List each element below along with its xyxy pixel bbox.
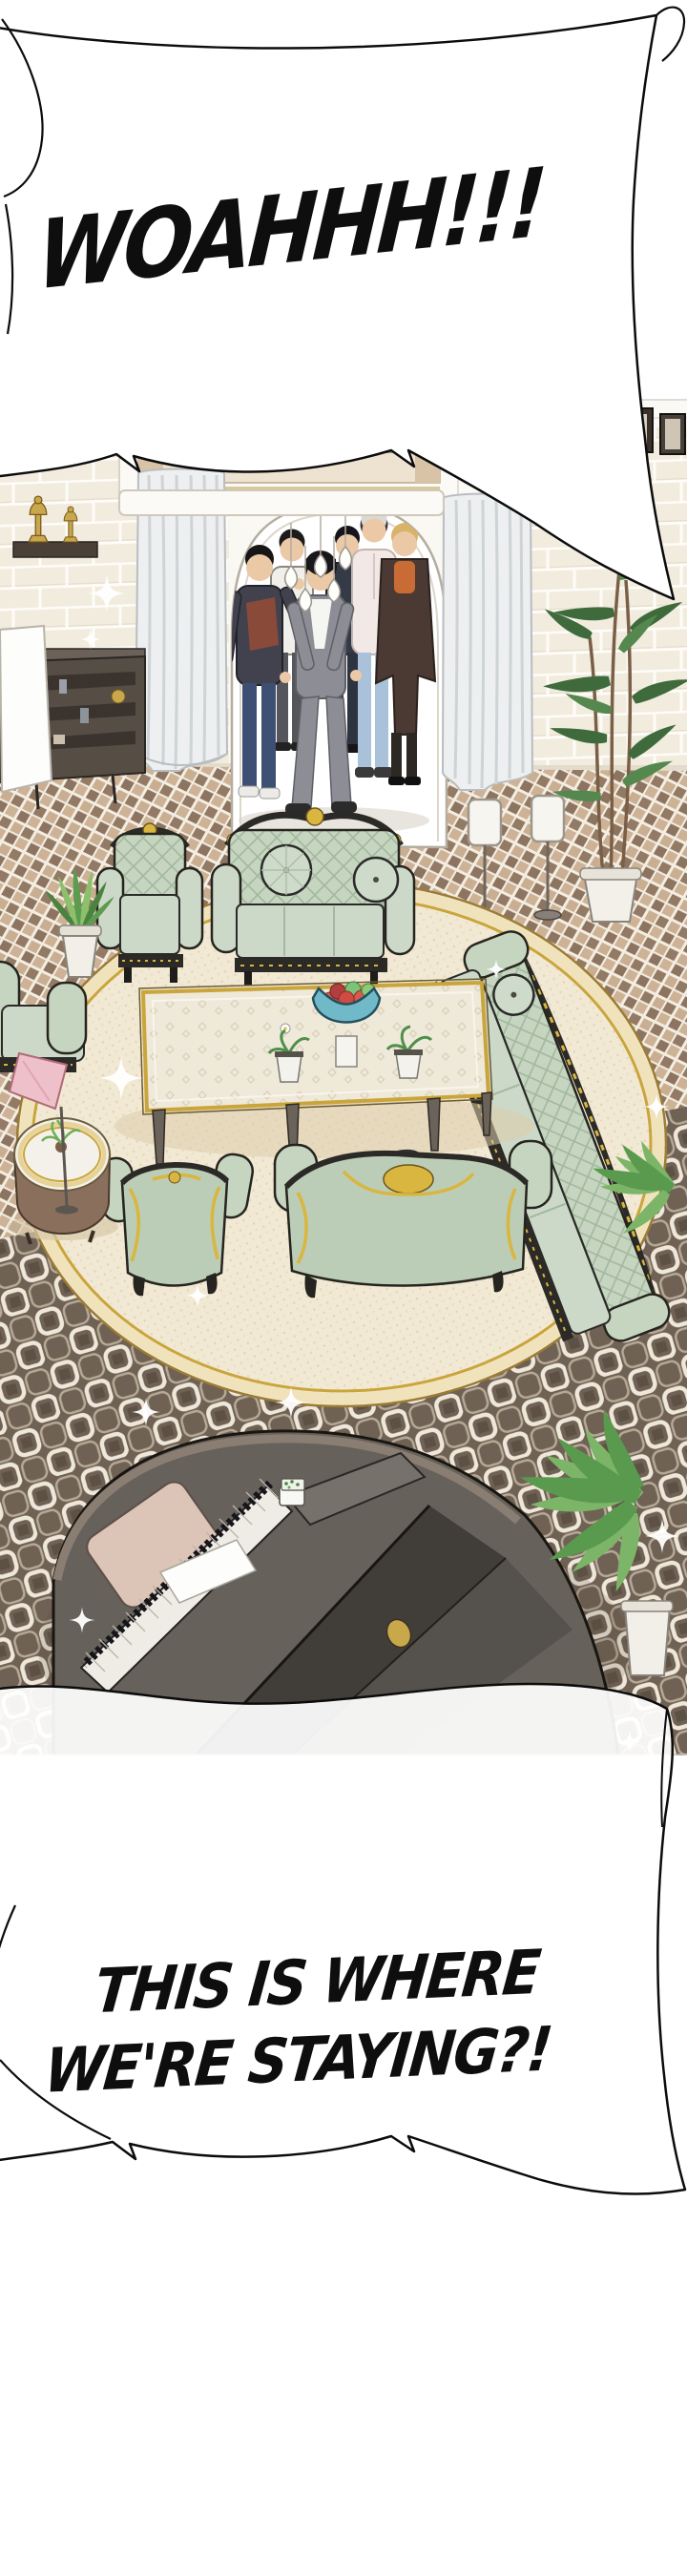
bubble-top-right-curl (656, 8, 684, 61)
piano-decor-box (280, 1479, 304, 1506)
bubble-top-shape (0, 15, 674, 599)
speech-bubble-top (0, 0, 687, 620)
royal-sofa (212, 808, 414, 986)
leaning-board (0, 626, 52, 792)
comic-page: WOAHHH!!! THIS IS WHERE WE'RE STAYING?! (0, 0, 687, 2576)
